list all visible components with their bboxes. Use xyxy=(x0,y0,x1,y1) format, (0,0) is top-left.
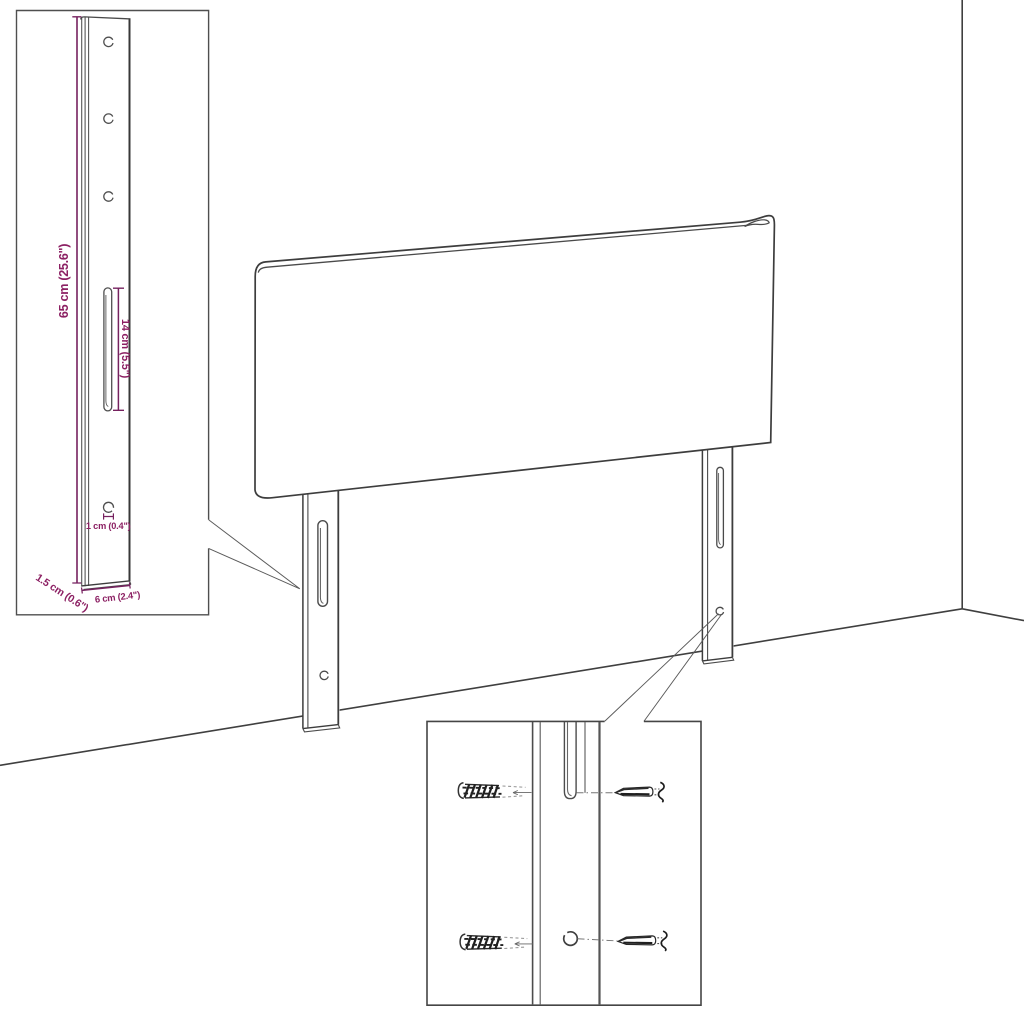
svg-text:14 cm (5.5"): 14 cm (5.5") xyxy=(119,319,131,379)
svg-text:65 cm (25.6"): 65 cm (25.6") xyxy=(57,244,71,318)
svg-text:1 cm (0.4"): 1 cm (0.4") xyxy=(86,521,131,531)
